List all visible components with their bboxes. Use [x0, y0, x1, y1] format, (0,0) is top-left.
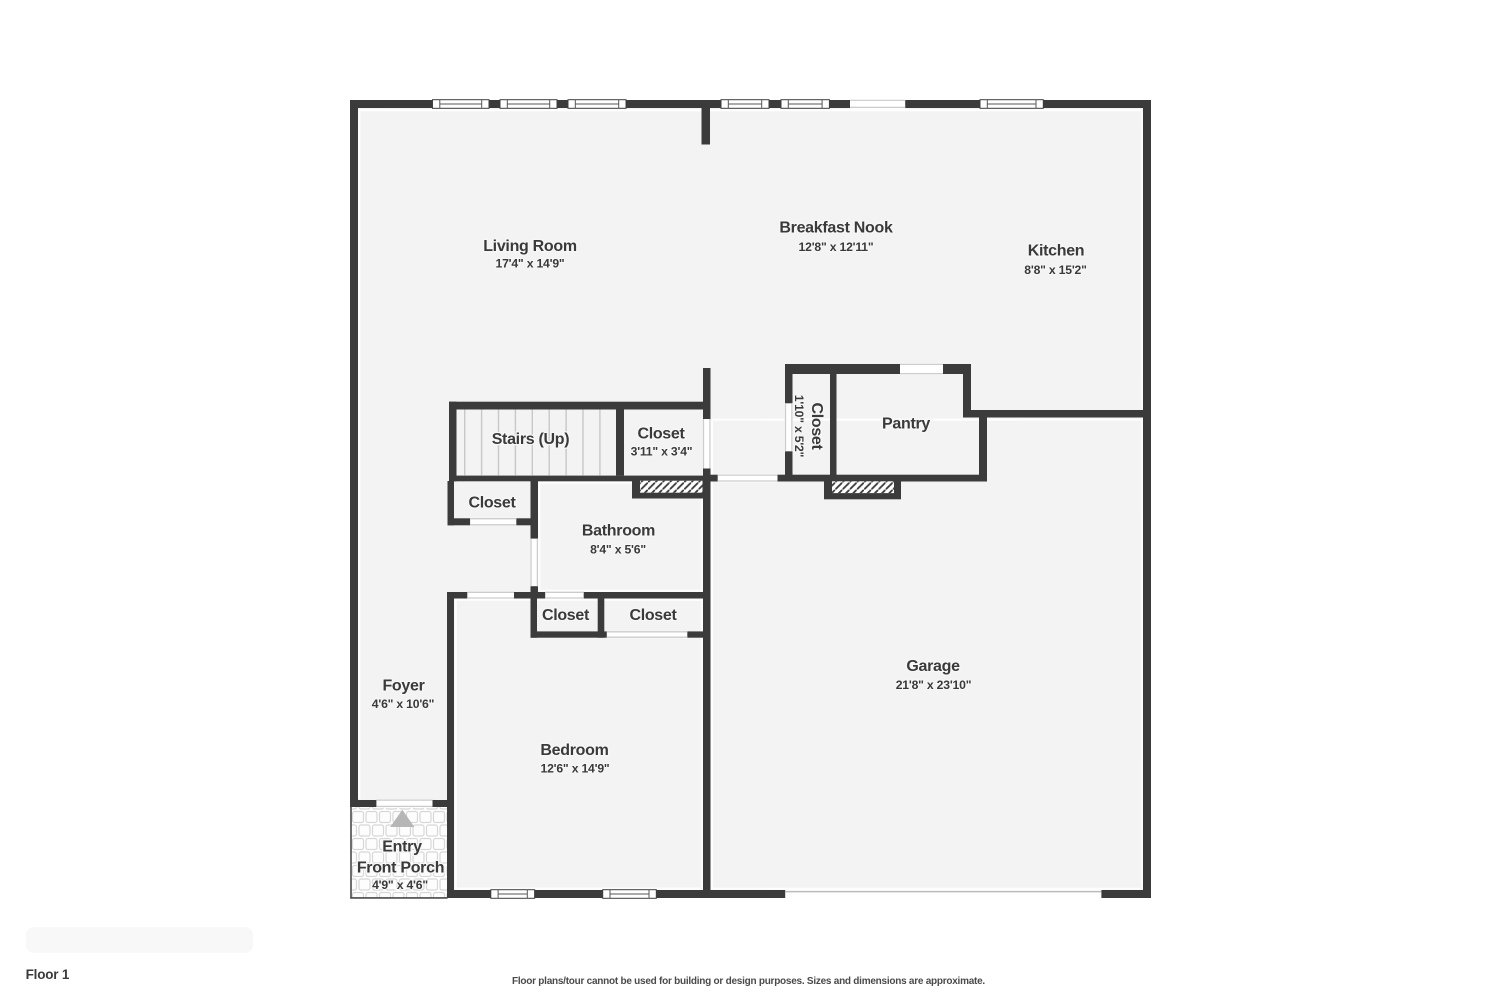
svg-text:Kitchen: Kitchen	[1028, 242, 1085, 259]
svg-text:Pantry: Pantry	[882, 416, 930, 433]
svg-text:4'9" x 4'6": 4'9" x 4'6"	[372, 878, 428, 892]
svg-text:Bathroom: Bathroom	[582, 523, 655, 540]
svg-text:4'6" x 10'6": 4'6" x 10'6"	[372, 697, 434, 711]
svg-text:Closet: Closet	[637, 425, 685, 442]
svg-text:21'8" x 23'10": 21'8" x 23'10"	[896, 678, 972, 692]
svg-text:12'6" x 14'9": 12'6" x 14'9"	[541, 761, 610, 775]
svg-text:17'4" x 14'9": 17'4" x 14'9"	[496, 256, 565, 270]
svg-text:1'10" x 5'2": 1'10" x 5'2"	[792, 395, 806, 457]
svg-text:Front Porch: Front Porch	[357, 860, 444, 877]
svg-text:12'8" x 12'11": 12'8" x 12'11"	[799, 240, 874, 254]
svg-text:Floor plans/tour cannot be use: Floor plans/tour cannot be used for buil…	[512, 976, 985, 987]
svg-text:Closet: Closet	[629, 607, 677, 624]
svg-text:Garage: Garage	[906, 658, 960, 675]
svg-text:Closet: Closet	[542, 607, 590, 624]
svg-text:Living Room: Living Room	[483, 238, 577, 255]
svg-text:Foyer: Foyer	[382, 678, 424, 695]
svg-text:Bedroom: Bedroom	[540, 742, 608, 759]
svg-text:Stairs (Up): Stairs (Up)	[492, 431, 570, 448]
svg-text:8'8" x 15'2": 8'8" x 15'2"	[1024, 263, 1086, 277]
svg-text:3'11" x 3'4": 3'11" x 3'4"	[631, 444, 693, 458]
svg-text:Floor 1: Floor 1	[26, 967, 70, 982]
svg-text:Closet: Closet	[808, 402, 825, 450]
svg-text:Breakfast Nook: Breakfast Nook	[779, 220, 893, 237]
svg-text:Entry: Entry	[382, 839, 422, 856]
svg-text:8'4" x 5'6": 8'4" x 5'6"	[590, 542, 646, 556]
svg-text:Closet: Closet	[468, 495, 516, 512]
